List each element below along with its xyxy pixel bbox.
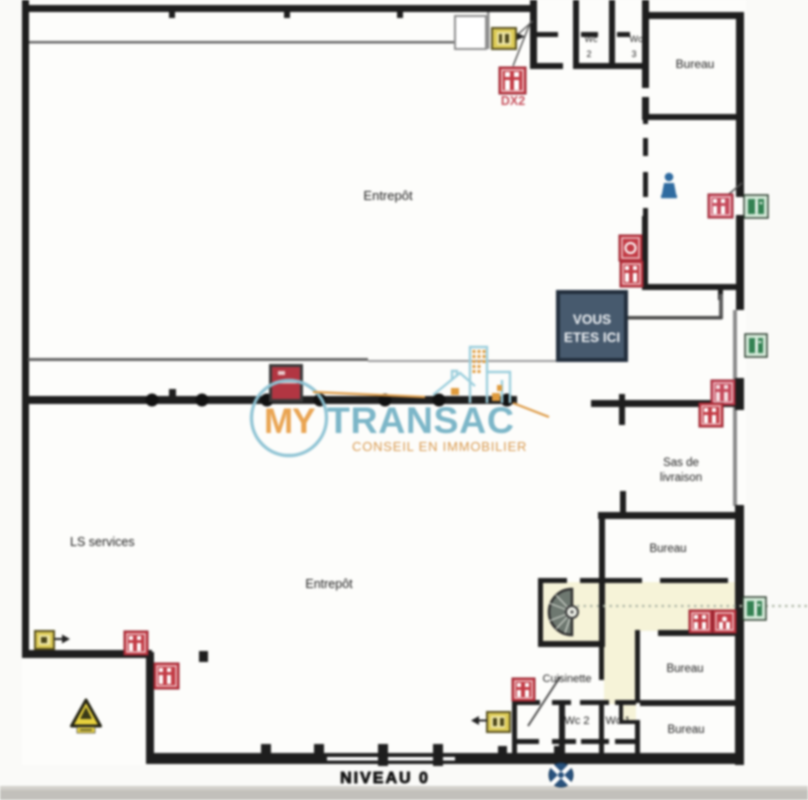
svg-text:TRANSAC: TRANSAC xyxy=(327,399,515,441)
svg-text:DX2: DX2 xyxy=(501,94,525,108)
svg-text:Sas de: Sas de xyxy=(663,457,699,469)
svg-text:Bureau: Bureau xyxy=(649,543,686,555)
svg-text:Wc: Wc xyxy=(630,34,643,44)
svg-text:CONSEIL EN IMMOBILIER: CONSEIL EN IMMOBILIER xyxy=(352,439,527,454)
svg-text:Wc 2: Wc 2 xyxy=(564,715,589,727)
svg-text:LS services: LS services xyxy=(70,535,135,549)
svg-text:MY: MY xyxy=(264,402,315,441)
svg-text:NIVEAU 0: NIVEAU 0 xyxy=(340,770,430,787)
svg-text:Entrepôt: Entrepôt xyxy=(305,577,353,591)
svg-text:Wc 1: Wc 1 xyxy=(605,715,630,727)
svg-text:Wc: Wc xyxy=(585,34,598,44)
svg-text:2: 2 xyxy=(586,49,591,59)
svg-text:Bureau: Bureau xyxy=(667,724,704,736)
svg-text:Entrepôt: Entrepôt xyxy=(363,188,413,203)
svg-text:Bureau: Bureau xyxy=(676,57,715,71)
svg-text:Cuisinette: Cuisinette xyxy=(543,673,592,685)
svg-text:VOUS: VOUS xyxy=(573,312,611,327)
svg-text:livraison: livraison xyxy=(660,472,702,484)
svg-text:ETES ICI: ETES ICI xyxy=(564,330,620,345)
svg-text:Bureau: Bureau xyxy=(666,663,703,675)
svg-text:3: 3 xyxy=(631,49,636,59)
